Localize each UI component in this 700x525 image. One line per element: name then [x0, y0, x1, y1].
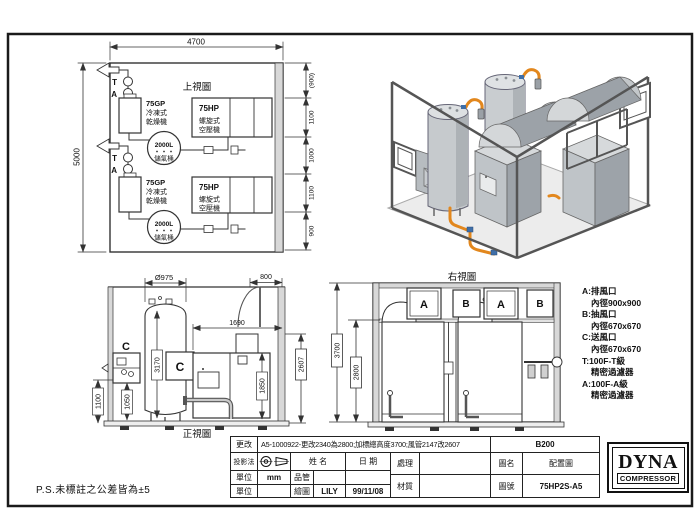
revision-text: A5-1000922-更改2340為2800;加標總高度3700;風管2147改… [257, 436, 491, 453]
front-view: 正視圖 Ø975 800 C [93, 273, 307, 440]
valve-symbol [204, 147, 213, 154]
logo-sub-text: COMPRESSOR [617, 473, 679, 484]
filter-t-label: T [112, 154, 117, 163]
material-value [419, 474, 491, 498]
isometric-view [388, 70, 650, 258]
vent-c-label: C [176, 360, 185, 374]
filter-t-symbol [124, 153, 133, 162]
compressor-name-2: 空壓機 [199, 125, 220, 134]
legend-line: A:100F-A級 [582, 379, 696, 391]
legend-item: A:100F-A級精密過濾器 [582, 379, 696, 402]
plan-chain-1: 1100 [309, 110, 316, 124]
dryer-name-1: 冷凍式 [146, 108, 167, 117]
compressor-name-1: 螺旋式 [199, 116, 220, 125]
drawing-name: 配置圖 [522, 452, 600, 475]
tank-name: 儲氣桶 [154, 233, 174, 242]
right-view-title: 右視圖 [448, 271, 477, 283]
line-filter [478, 109, 484, 119]
front-floor [104, 421, 289, 426]
plan-chain-2: 1000 [309, 148, 316, 163]
sheet-code: B200 [490, 436, 600, 453]
plan-view: 上視圖 4700 5000 (900) 1100 1000 1100 900 [73, 38, 316, 253]
valve-symbol [204, 226, 213, 233]
tolerance-note: P.S.未標註之公差皆為±5 [36, 481, 150, 496]
draftsman-label: 繪圖 [290, 484, 314, 498]
date-header: 日 期 [345, 452, 391, 471]
front-dim-tank-dia: Ø975 [155, 273, 173, 282]
front-view-title: 正視圖 [183, 428, 212, 440]
legend-item: B:抽風口內徑670x670 [582, 309, 696, 332]
legend-line: 精密過濾器 [582, 390, 696, 402]
unit-label-2: 單位 [230, 484, 258, 498]
legend-line: 精密過濾器 [582, 367, 696, 379]
dryer-outline [119, 177, 141, 212]
filter-t-label: T [112, 78, 117, 87]
process-value [419, 452, 491, 475]
unit-label: 單位 [230, 470, 258, 485]
line-filter [535, 79, 541, 89]
vent-a-label: A [420, 299, 428, 311]
compressor-name-2: 空壓機 [199, 204, 220, 213]
dryer-model: 75GP [146, 178, 165, 187]
plan-dim-height: 5000 [73, 148, 82, 166]
drawing-sheet: 上視圖 4700 5000 (900) 1100 1000 1100 900 [0, 0, 700, 525]
filter-t-symbol [124, 77, 133, 86]
company-logo: DYNA COMPRESSOR [607, 442, 689, 493]
front-left-wall [108, 287, 113, 423]
vent-c-label: C [122, 341, 130, 353]
right-vent-a2: A [484, 288, 518, 319]
front-dim-door: 800 [260, 274, 272, 281]
tank-model: 2000L [155, 142, 173, 149]
projection-symbol-icon [259, 454, 290, 469]
duct-riser [236, 334, 258, 353]
legend-line: C:送風口 [582, 332, 696, 344]
exhaust-arrow-icon [97, 139, 119, 153]
right-vent-b1: B [453, 290, 480, 317]
plan-chain-0: (900) [309, 73, 316, 88]
front-dim-1050: 1050 [125, 394, 132, 410]
legend: A:排風口內徑900x900 B:抽風口內徑670x670 C:送風口內徑670… [582, 286, 696, 402]
drawing-no: 75HP2S-A5 [522, 474, 600, 498]
tank-name: 儲氣桶 [154, 154, 174, 163]
front-dim-1850: 1850 [260, 378, 267, 394]
dryer-name-2: 乾燥機 [146, 117, 167, 126]
plan-right-wall [275, 63, 283, 252]
dryer-name-2: 乾燥機 [146, 196, 167, 205]
drawing-no-label: 圖號 [490, 474, 523, 498]
legend-line: T:100F-T級 [582, 356, 696, 368]
plan-dim-width: 4700 [187, 38, 205, 47]
legend-line: 內徑900x900 [582, 298, 696, 310]
unit-value-2 [257, 484, 291, 498]
plan-view-title: 上視圖 [183, 81, 212, 93]
projection-label: 投影法 [230, 452, 258, 471]
compressor-model: 75HP [199, 183, 220, 192]
draftsman-name: LILY [313, 484, 346, 498]
qc-name [313, 470, 346, 485]
filter-a-symbol [124, 165, 133, 174]
unit-value: mm [257, 470, 291, 485]
dryer-model: 75GP [146, 99, 165, 108]
dryer-outline [119, 98, 141, 133]
filter-a-label: A [111, 90, 117, 99]
plan-chain-3: 1100 [309, 186, 316, 200]
front-dim-1690: 1690 [229, 320, 245, 327]
right-vent-a1: A [407, 288, 441, 319]
right-dim-2800: 2800 [354, 365, 361, 381]
qc-label: 品管 [290, 470, 314, 485]
compressor-name-1: 螺旋式 [199, 195, 220, 204]
tank-model: 2000L [155, 221, 173, 228]
vent-b-label: B [536, 299, 543, 310]
vent-b-label: B [462, 299, 469, 310]
legend-line: B:抽風口 [582, 309, 696, 321]
right-vent-b2: B [527, 290, 553, 317]
name-header: 姓 名 [290, 452, 346, 471]
right-dim-3700: 3700 [335, 343, 342, 359]
revision-label: 更改 [230, 436, 258, 453]
gooseneck-pipe [466, 100, 482, 109]
dryer-name-1: 冷凍式 [146, 187, 167, 196]
plan-unit-2: T A 75GP 冷凍式 乾燥機 2000L 儲氣桶 75HP 螺旋式 空壓機 [97, 139, 272, 244]
front-dim-3170: 3170 [155, 357, 162, 373]
legend-item: C:送風口內徑670x670 [582, 332, 696, 355]
exhaust-arrow-icon [97, 63, 119, 77]
front-dim-2607: 2607 [299, 357, 306, 373]
plan-unit-1: T A 75GP 冷凍式 乾燥機 2000L 儲氣桶 75HP 螺旋式 空壓機 [97, 63, 272, 165]
legend-line: 內徑670x670 [582, 321, 696, 333]
legend-line: A:排風口 [582, 286, 696, 298]
vent-a-label: A [497, 299, 505, 311]
material-label: 材質 [390, 474, 420, 498]
legend-line: 內徑670x670 [582, 344, 696, 356]
airflow-arrow-icon [102, 364, 108, 372]
iso-left-window [394, 142, 416, 176]
right-floor [368, 422, 564, 427]
front-vent-c2: C [166, 352, 194, 380]
right-view: 右視圖 [329, 271, 564, 431]
plan-dim-chain [285, 63, 311, 250]
plan-chain-4: 900 [309, 225, 316, 236]
drawing-name-label: 圖名 [490, 452, 523, 475]
front-right-wall [278, 287, 285, 423]
legend-item: T:100F-T級精密過濾器 [582, 356, 696, 379]
process-label: 處理 [390, 452, 420, 475]
front-dim-1100: 1100 [96, 394, 103, 409]
legend-item: A:排風口內徑900x900 [582, 286, 696, 309]
gooseneck-pipe [523, 70, 539, 79]
filter-a-label: A [111, 166, 117, 175]
logo-brand-text: DYNA [618, 452, 678, 472]
qc-date [345, 470, 391, 485]
draft-date: 99/11/08 [345, 484, 391, 498]
projection-symbol-cell [257, 452, 291, 471]
compressor-model: 75HP [199, 104, 220, 113]
